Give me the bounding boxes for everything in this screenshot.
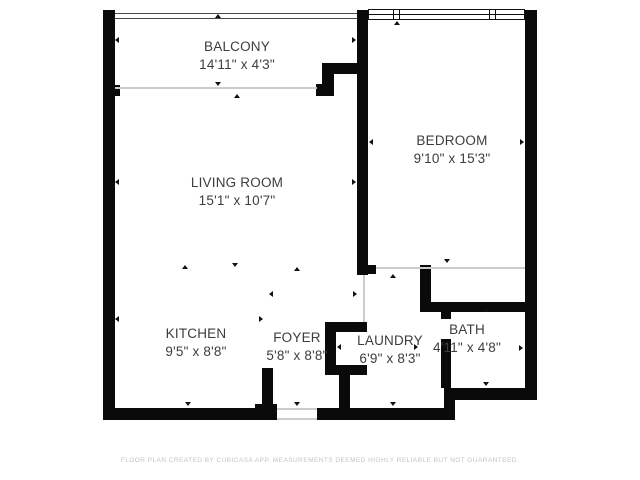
room-name: BALCONY <box>157 38 317 56</box>
entry-door-threshold <box>277 408 317 410</box>
disclaimer-text: FLOOR PLAN CREATED BY CUBICASA APP. MEAS… <box>0 457 640 464</box>
dimension-arrow-right-icon <box>352 179 356 185</box>
dimension-arrow-down-icon <box>215 82 221 86</box>
floor-plan-page: BALCONY 14'11" x 4'3" LIVING ROOM 15'1" … <box>0 0 640 480</box>
balcony-railing-line <box>115 13 357 14</box>
dimension-arrow-down-icon <box>294 402 300 406</box>
dimension-arrow-right-icon <box>353 291 357 297</box>
room-dimensions: 4'11" x 4'8" <box>397 339 537 357</box>
room-label-bedroom: BEDROOM 9'10" x 15'3" <box>372 132 532 168</box>
exterior-wall-bottom-left <box>103 408 277 420</box>
floor-plan: BALCONY 14'11" x 4'3" LIVING ROOM 15'1" … <box>0 0 640 480</box>
wall-kitchen-divider-foot <box>255 404 277 420</box>
exterior-wall-bottom-right <box>444 388 537 400</box>
dimension-arrow-down-icon <box>444 259 450 263</box>
room-dimensions: 15'1" x 10'7" <box>147 192 327 210</box>
room-name: LIVING ROOM <box>147 174 327 192</box>
dimension-arrow-up-icon <box>215 14 221 18</box>
dimension-arrow-right-icon <box>352 37 356 43</box>
wall-balcony-jog-horizontal <box>322 63 368 74</box>
dimension-arrow-right-icon <box>259 316 263 322</box>
dimension-arrow-up-icon <box>394 21 400 25</box>
entry-door-threshold <box>277 418 317 420</box>
wall-divider-foot <box>368 265 376 274</box>
room-name: BEDROOM <box>372 132 532 150</box>
dimension-arrow-down-icon <box>185 402 191 406</box>
wall-balcony-jog-foot <box>316 84 334 96</box>
wall-kitchen-foyer-divider <box>262 368 273 409</box>
wall-bath-top <box>420 302 525 312</box>
room-label-living-room: LIVING ROOM 15'1" x 10'7" <box>147 174 327 210</box>
bedroom-window <box>368 9 525 20</box>
dimension-arrow-up-icon <box>294 267 300 271</box>
wall-laundry-descender <box>339 373 350 420</box>
boundary-balcony-living <box>115 87 317 89</box>
boundary-foyer-hall <box>363 275 365 322</box>
window-mullion <box>489 10 496 19</box>
dimension-arrow-up-icon <box>182 265 188 269</box>
dimension-arrow-up-icon <box>234 94 240 98</box>
dimension-arrow-left-icon <box>115 37 119 43</box>
dimension-arrow-left-icon <box>115 179 119 185</box>
window-mullion <box>393 10 400 19</box>
room-dimensions: 9'10" x 15'3" <box>372 150 532 168</box>
room-label-balcony: BALCONY 14'11" x 4'3" <box>157 38 317 74</box>
room-label-bath: BATH 4'11" x 4'8" <box>397 321 537 357</box>
exterior-wall-bottom-mid <box>317 408 455 420</box>
dimension-arrow-up-icon <box>390 274 396 278</box>
dimension-arrow-left-icon <box>115 316 119 322</box>
wall-living-bedroom-divider <box>357 10 368 275</box>
dimension-arrow-left-icon <box>269 291 273 297</box>
room-name: BATH <box>397 321 537 339</box>
boundary-bedroom-hall <box>376 267 525 269</box>
wall-bath-left-stub <box>441 312 451 319</box>
dimension-arrow-up-icon <box>483 308 489 312</box>
room-dimensions: 14'11" x 4'3" <box>157 56 317 74</box>
dimension-arrow-down-icon <box>390 402 396 406</box>
dimension-arrow-down-icon <box>232 263 238 267</box>
dimension-arrow-down-icon <box>483 382 489 386</box>
exterior-wall-left <box>103 10 115 420</box>
balcony-railing-line <box>115 18 357 19</box>
